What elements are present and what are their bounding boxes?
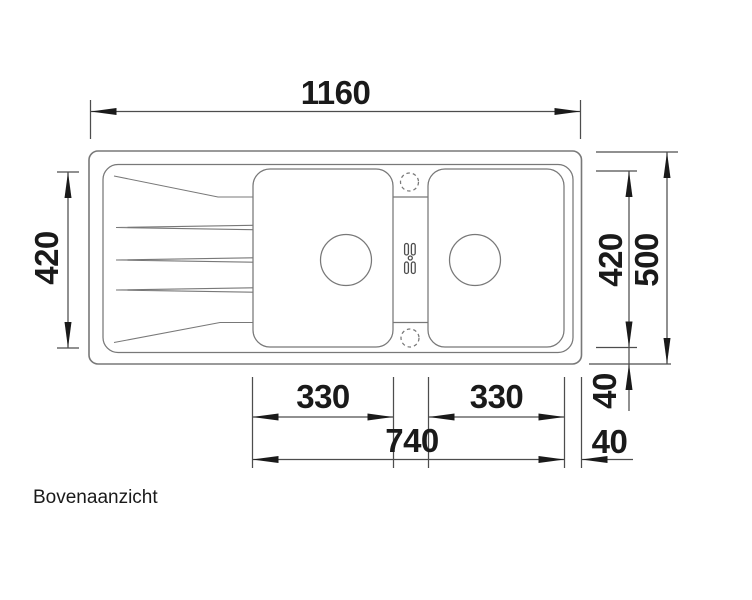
dim-rim-bottom-label: 40 [586,373,623,409]
dimension-right-side: 420 500 40 [586,152,678,411]
dim-center-bowl-width-label: 330 [296,378,350,415]
drawing-caption: Bovenaanzicht [33,487,158,508]
dim-overall-depth-label: 500 [628,233,665,287]
drainboard-groove [116,288,253,292]
overflow-hole [405,244,409,256]
arrowhead-right-icon [368,414,394,421]
arrowhead-right-icon [555,108,581,115]
dim-bowls-total-width-label: 740 [385,422,439,459]
arrowhead-up-icon [65,172,72,198]
technical-drawing-sink-top-view: 1160 420 420 500 40 [0,0,752,600]
sink-outer-edge [89,151,582,364]
dim-overall-width-label: 1160 [301,74,371,111]
arrowhead-left-icon [253,456,279,463]
arrowhead-up-icon [626,171,633,197]
arrowhead-up-icon [664,152,671,178]
arrowhead-right-icon [539,414,565,421]
arrowhead-down-icon [65,322,72,348]
arrowhead-up-icon [626,364,633,390]
overflow-hole [411,244,415,256]
drainboard-groove [116,225,253,229]
drainboard [114,176,253,343]
dim-rim-right-label: 40 [592,423,628,460]
overflow-hole [405,262,409,274]
dim-right-bowl-width-label: 330 [470,378,524,415]
overflow-hole [408,256,412,260]
drainboard-bottom-groove [114,323,253,343]
dimension-overall-width: 1160 [91,74,581,139]
drainboard-groove [116,258,253,262]
arrowhead-left-icon [429,414,455,421]
dim-right-bowl-height-label: 420 [592,233,629,287]
sink-inner-rim [103,165,573,353]
arrowhead-left-icon [91,108,117,115]
tap-hole-top-icon [401,173,419,191]
right-bowl [428,169,564,347]
right-bowl-drain-icon [450,235,501,286]
arrowhead-down-icon [626,322,633,348]
overflow-hole [411,262,415,274]
arrowhead-right-icon [539,456,565,463]
dimension-bottom-side: 330 330 740 40 [253,377,634,468]
arrowhead-left-icon [253,414,279,421]
tap-hole-bottom-icon [401,329,419,347]
dimension-left-height: 420 [28,172,79,348]
arrowhead-down-icon [664,338,671,364]
drawing-canvas: 1160 420 420 500 40 [0,0,752,600]
center-bowl-drain-icon [321,235,372,286]
drainboard-top-groove [114,176,253,197]
overflow-holes-icon [405,244,416,274]
sink-body [89,151,582,364]
dim-left-height-label: 420 [28,231,65,285]
